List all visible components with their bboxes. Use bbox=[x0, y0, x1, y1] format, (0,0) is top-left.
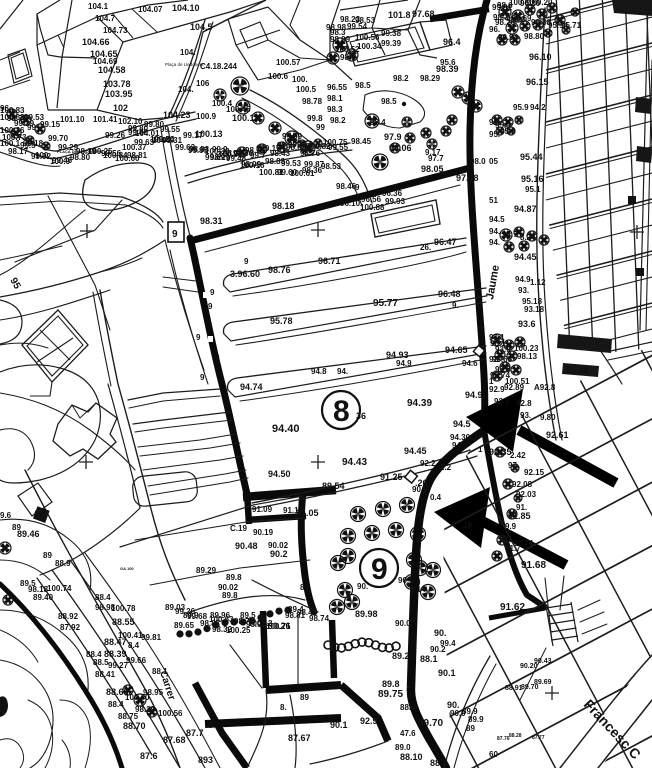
svg-text:C.19: C.19 bbox=[230, 524, 247, 533]
svg-text:96.10: 96.10 bbox=[340, 199, 361, 208]
svg-text:87.76: 87.76 bbox=[497, 736, 510, 742]
svg-text:89.98: 89.98 bbox=[355, 609, 378, 619]
svg-text:94.43: 94.43 bbox=[342, 457, 367, 468]
svg-text:87.77: 87.77 bbox=[532, 735, 545, 741]
svg-text:A92.8: A92.8 bbox=[534, 383, 556, 392]
svg-text:9: 9 bbox=[244, 257, 249, 266]
svg-text:91.09: 91.09 bbox=[252, 505, 273, 514]
svg-text:100.41: 100.41 bbox=[118, 631, 143, 640]
svg-text:96.10: 96.10 bbox=[529, 52, 552, 62]
svg-text:90.43: 90.43 bbox=[534, 658, 552, 665]
svg-text:94.40: 94.40 bbox=[272, 423, 300, 435]
svg-text:89.0: 89.0 bbox=[395, 743, 411, 752]
svg-text:60: 60 bbox=[489, 750, 498, 759]
svg-text:98.81: 98.81 bbox=[127, 151, 148, 160]
svg-text:92.9: 92.9 bbox=[360, 716, 378, 726]
svg-text:99.7: 99.7 bbox=[250, 151, 266, 160]
svg-text:89.8: 89.8 bbox=[222, 591, 238, 600]
svg-text:9.80: 9.80 bbox=[540, 413, 556, 422]
svg-text:89.9: 89.9 bbox=[468, 715, 484, 724]
svg-text:89: 89 bbox=[300, 693, 309, 702]
svg-text:100.74: 100.74 bbox=[47, 584, 72, 593]
svg-text:92.15: 92.15 bbox=[524, 468, 545, 477]
svg-text:99.53: 99.53 bbox=[281, 159, 302, 168]
svg-text:95.71: 95.71 bbox=[561, 21, 582, 30]
svg-text:102: 102 bbox=[113, 103, 128, 113]
svg-text:90.1: 90.1 bbox=[438, 668, 456, 678]
svg-text:96: 96 bbox=[0, 104, 9, 113]
svg-text:98.05: 98.05 bbox=[421, 164, 444, 174]
svg-text:98.13: 98.13 bbox=[517, 352, 538, 361]
svg-text:94.5: 94.5 bbox=[489, 215, 505, 224]
svg-text:100.56: 100.56 bbox=[355, 33, 380, 42]
svg-text:90.2: 90.2 bbox=[270, 549, 288, 559]
svg-text:95.78: 95.78 bbox=[270, 316, 293, 326]
svg-text:94.74: 94.74 bbox=[240, 382, 263, 392]
svg-text:98.78: 98.78 bbox=[7, 114, 28, 123]
svg-text:94.65: 94.65 bbox=[445, 345, 468, 355]
svg-text:93.18: 93.18 bbox=[524, 305, 545, 314]
svg-text:98.3: 98.3 bbox=[327, 105, 343, 114]
svg-text:98.4: 98.4 bbox=[370, 118, 386, 127]
svg-text:3: 3 bbox=[208, 720, 213, 730]
svg-text:99.70: 99.70 bbox=[48, 134, 69, 143]
svg-text:89.40: 89.40 bbox=[33, 593, 54, 602]
svg-text:104.: 104. bbox=[180, 48, 196, 57]
svg-text:104.10: 104.10 bbox=[172, 3, 200, 13]
svg-text:9: 9 bbox=[208, 302, 213, 311]
svg-text:97.38: 97.38 bbox=[456, 173, 479, 183]
svg-text:89.75: 89.75 bbox=[378, 689, 403, 700]
svg-text:Plaça de Lledoners: Plaça de Lledoners bbox=[165, 62, 204, 67]
svg-text:87.7: 87.7 bbox=[186, 728, 204, 738]
svg-text:95.77: 95.77 bbox=[373, 298, 398, 309]
svg-text:2.2: 2.2 bbox=[440, 463, 452, 472]
svg-text:98.2: 98.2 bbox=[330, 116, 346, 125]
svg-text:9: 9 bbox=[371, 553, 388, 586]
svg-text:96.71: 96.71 bbox=[318, 256, 341, 266]
svg-text:88.41: 88.41 bbox=[95, 670, 116, 679]
svg-text:.18: .18 bbox=[461, 521, 473, 530]
svg-text:96.4: 96.4 bbox=[443, 37, 461, 47]
svg-text:94.: 94. bbox=[452, 441, 463, 450]
svg-text:89.69: 89.69 bbox=[534, 679, 552, 686]
svg-text:99.38: 99.38 bbox=[381, 29, 402, 38]
svg-text:104.58: 104.58 bbox=[98, 65, 126, 75]
svg-text:94.8: 94.8 bbox=[311, 367, 327, 376]
svg-text:100.18: 100.18 bbox=[232, 113, 260, 123]
svg-text:92.89: 92.89 bbox=[504, 383, 525, 392]
svg-text:90.1: 90.1 bbox=[330, 720, 348, 730]
svg-text:92.9: 92.9 bbox=[489, 385, 505, 394]
svg-text:98.18: 98.18 bbox=[28, 585, 49, 594]
svg-text:94.5: 94.5 bbox=[453, 419, 471, 429]
svg-text:99: 99 bbox=[27, 123, 36, 132]
svg-text:103.78: 103.78 bbox=[103, 79, 131, 89]
svg-text:94.45: 94.45 bbox=[514, 252, 537, 262]
svg-text:98.31: 98.31 bbox=[200, 216, 223, 226]
svg-text:92.08: 92.08 bbox=[512, 480, 533, 489]
svg-text:100.88: 100.88 bbox=[360, 203, 385, 212]
svg-text:PLAÇA DE LLEDONERS: PLAÇA DE LLEDONERS bbox=[57, 149, 103, 154]
svg-text:9: 9 bbox=[355, 183, 360, 192]
svg-text:9.9: 9.9 bbox=[505, 522, 517, 531]
svg-text:98.11: 98.11 bbox=[490, 339, 510, 348]
svg-text:98.95: 98.95 bbox=[143, 688, 164, 697]
svg-text:97.68: 97.68 bbox=[412, 9, 435, 19]
svg-text:104.23: 104.23 bbox=[163, 110, 191, 120]
svg-text:98.39: 98.39 bbox=[436, 64, 459, 74]
svg-text:101.10: 101.10 bbox=[60, 115, 85, 124]
svg-text:99.55: 99.55 bbox=[160, 125, 181, 134]
svg-text:98.76: 98.76 bbox=[300, 149, 321, 158]
svg-text:88.1: 88.1 bbox=[152, 667, 168, 676]
svg-text:100.13: 100.13 bbox=[195, 129, 223, 139]
svg-text:90.: 90. bbox=[357, 582, 368, 591]
svg-text:89.2: 89.2 bbox=[392, 651, 410, 661]
svg-text:99.26: 99.26 bbox=[105, 131, 126, 140]
svg-text:98.36: 98.36 bbox=[302, 166, 323, 175]
svg-text:98.65: 98.65 bbox=[492, 355, 513, 364]
svg-text:99.8: 99.8 bbox=[288, 140, 304, 149]
svg-text:99.66: 99.66 bbox=[126, 656, 147, 665]
svg-text:99.81: 99.81 bbox=[141, 633, 162, 642]
svg-text:89.70: 89.70 bbox=[418, 718, 443, 729]
svg-text:89.65: 89.65 bbox=[174, 621, 195, 630]
svg-text:C4.18.244: C4.18.244 bbox=[200, 62, 237, 71]
svg-text:100.1: 100.1 bbox=[0, 139, 21, 148]
svg-text:95.1: 95.1 bbox=[525, 185, 541, 194]
svg-text:88.4: 88.4 bbox=[95, 593, 111, 602]
svg-text:100.5: 100.5 bbox=[296, 85, 317, 94]
svg-text:1.12: 1.12 bbox=[530, 278, 546, 287]
svg-text:88.92: 88.92 bbox=[58, 612, 79, 621]
svg-text:100.6: 100.6 bbox=[268, 72, 289, 81]
svg-text:9.: 9. bbox=[452, 301, 459, 310]
svg-text:87.92: 87.92 bbox=[60, 623, 81, 632]
svg-text:91.7: 91.7 bbox=[505, 544, 521, 553]
svg-text:100.69: 100.69 bbox=[507, 14, 532, 23]
svg-text:98.5: 98.5 bbox=[340, 53, 356, 62]
svg-text:3.96.60: 3.96.60 bbox=[230, 269, 260, 279]
svg-text:94.6: 94.6 bbox=[462, 359, 478, 368]
svg-text:90.19: 90.19 bbox=[253, 528, 274, 537]
svg-text:100.56: 100.56 bbox=[158, 709, 183, 718]
svg-text:2.14: 2.14 bbox=[410, 585, 426, 594]
svg-text:94.39: 94.39 bbox=[407, 398, 432, 409]
svg-text:106: 106 bbox=[196, 79, 210, 88]
svg-text:90.: 90. bbox=[398, 576, 409, 585]
svg-text:99.93: 99.93 bbox=[385, 197, 406, 206]
svg-text:97.7: 97.7 bbox=[428, 154, 444, 163]
svg-text:94.9: 94.9 bbox=[396, 359, 412, 368]
svg-text:98.45: 98.45 bbox=[351, 137, 372, 146]
svg-text:893: 893 bbox=[198, 755, 213, 765]
svg-text:95.16: 95.16 bbox=[521, 174, 544, 184]
svg-text:9: 9 bbox=[196, 333, 201, 342]
svg-text:98.2: 98.2 bbox=[393, 74, 409, 83]
svg-text:89.8: 89.8 bbox=[226, 573, 242, 582]
svg-text:94.2: 94.2 bbox=[530, 103, 546, 112]
svg-text:94.9: 94.9 bbox=[515, 275, 531, 284]
svg-text:90.48: 90.48 bbox=[235, 541, 258, 551]
svg-text:93.: 93. bbox=[520, 411, 531, 420]
svg-text:100.: 100. bbox=[292, 75, 308, 84]
svg-text:99.39: 99.39 bbox=[381, 39, 402, 48]
svg-text:101.8: 101.8 bbox=[388, 10, 411, 20]
svg-text:96.47: 96.47 bbox=[434, 237, 457, 247]
svg-text:2.42: 2.42 bbox=[510, 451, 526, 460]
svg-text:87.68: 87.68 bbox=[163, 735, 186, 745]
svg-text:98.80: 98.80 bbox=[524, 32, 545, 41]
svg-text:103.95: 103.95 bbox=[105, 89, 133, 99]
svg-text:104: 104 bbox=[152, 136, 166, 145]
svg-text:90.: 90. bbox=[434, 628, 447, 638]
svg-text:104.07: 104.07 bbox=[138, 5, 163, 14]
svg-text:99.95: 99.95 bbox=[188, 146, 209, 155]
svg-text:98.76: 98.76 bbox=[268, 265, 291, 275]
svg-text:98.29: 98.29 bbox=[420, 74, 441, 83]
svg-text:104.1: 104.1 bbox=[88, 2, 109, 11]
svg-text:100.34: 100.34 bbox=[357, 42, 382, 51]
svg-text:88.55: 88.55 bbox=[112, 617, 135, 627]
svg-text:98.99: 98.99 bbox=[330, 35, 351, 44]
svg-text:92.61: 92.61 bbox=[546, 430, 569, 440]
svg-text:100.9: 100.9 bbox=[50, 157, 71, 166]
svg-text:88.28: 88.28 bbox=[509, 733, 522, 739]
svg-text:98.78: 98.78 bbox=[302, 97, 323, 106]
svg-text:8.: 8. bbox=[280, 703, 287, 712]
svg-text:51: 51 bbox=[489, 196, 498, 205]
svg-text:100.57: 100.57 bbox=[276, 58, 301, 67]
svg-text:101.41: 101.41 bbox=[93, 115, 118, 124]
svg-text:47.6: 47.6 bbox=[400, 729, 416, 738]
svg-text:104.73: 104.73 bbox=[103, 26, 128, 35]
svg-text:94.45: 94.45 bbox=[404, 446, 427, 456]
svg-text:88.1: 88.1 bbox=[420, 654, 438, 664]
svg-text:89.46: 89.46 bbox=[17, 529, 40, 539]
svg-text:88.91: 88.91 bbox=[505, 685, 523, 692]
svg-text:104.: 104. bbox=[178, 85, 194, 94]
svg-text:100: 100 bbox=[35, 151, 49, 160]
svg-text:9: 9 bbox=[172, 229, 178, 240]
svg-text:98.5: 98.5 bbox=[381, 97, 397, 106]
svg-text:8: 8 bbox=[333, 395, 350, 428]
svg-text:1: 1 bbox=[478, 445, 483, 454]
svg-text:104.5: 104.5 bbox=[190, 22, 213, 32]
svg-text:99: 99 bbox=[316, 123, 325, 132]
svg-text:100.20: 100.20 bbox=[528, 0, 553, 7]
svg-text:99.97: 99.97 bbox=[246, 620, 267, 629]
svg-text:89.: 89. bbox=[300, 583, 311, 592]
svg-text:99.94: 99.94 bbox=[498, 33, 519, 42]
svg-text:91.05: 91.05 bbox=[296, 508, 319, 518]
svg-text:99.8: 99.8 bbox=[307, 114, 323, 123]
svg-text:87.67: 87.67 bbox=[288, 733, 311, 743]
svg-text:98.1: 98.1 bbox=[327, 94, 343, 103]
svg-text:94.: 94. bbox=[337, 367, 348, 376]
svg-text:88.10: 88.10 bbox=[400, 752, 423, 762]
svg-text:99.55: 99.55 bbox=[328, 143, 349, 152]
svg-text:91.1: 91.1 bbox=[283, 506, 299, 515]
svg-text:0.4: 0.4 bbox=[430, 493, 442, 502]
svg-text:90.2: 90.2 bbox=[412, 485, 428, 494]
svg-text:94.9: 94.9 bbox=[465, 390, 483, 400]
svg-text:91.62: 91.62 bbox=[500, 602, 525, 613]
svg-text:90.0: 90.0 bbox=[395, 619, 411, 628]
svg-text:98.06: 98.06 bbox=[389, 143, 412, 153]
svg-text:98.74: 98.74 bbox=[309, 614, 330, 623]
svg-text:95.44: 95.44 bbox=[520, 152, 543, 162]
svg-text:90.2: 90.2 bbox=[430, 645, 446, 654]
svg-text:100.71: 100.71 bbox=[266, 622, 291, 631]
svg-text:88.9: 88.9 bbox=[55, 559, 71, 568]
svg-text:8.4: 8.4 bbox=[128, 641, 140, 650]
svg-text:26.: 26. bbox=[420, 243, 431, 252]
svg-text:9: 9 bbox=[200, 373, 205, 382]
svg-text:96.55: 96.55 bbox=[327, 83, 348, 92]
svg-text:98.53: 98.53 bbox=[321, 162, 342, 171]
svg-text:100.78: 100.78 bbox=[111, 604, 136, 613]
svg-text:104.7: 104.7 bbox=[95, 14, 116, 23]
svg-text:97.9: 97.9 bbox=[384, 132, 402, 142]
svg-text:89: 89 bbox=[466, 724, 475, 733]
svg-text:9.6: 9.6 bbox=[0, 511, 12, 520]
svg-text:9: 9 bbox=[215, 353, 220, 362]
svg-text:94.: 94. bbox=[489, 227, 500, 236]
svg-text:89.54: 89.54 bbox=[322, 481, 345, 491]
svg-text:100.36: 100.36 bbox=[0, 126, 25, 135]
svg-text:93.: 93. bbox=[518, 286, 529, 295]
svg-text:99.5: 99.5 bbox=[20, 141, 36, 150]
svg-text:9: 9 bbox=[210, 288, 215, 297]
svg-text:93.6: 93.6 bbox=[518, 319, 536, 329]
svg-text:92.2: 92.2 bbox=[420, 459, 436, 468]
svg-text:91.68: 91.68 bbox=[521, 560, 546, 571]
svg-text:88.70: 88.70 bbox=[123, 721, 146, 731]
svg-text:98.5: 98.5 bbox=[355, 81, 371, 90]
svg-text:87.6: 87.6 bbox=[140, 751, 158, 761]
svg-text:89.29: 89.29 bbox=[196, 566, 217, 575]
svg-text:91.25: 91.25 bbox=[380, 472, 403, 482]
svg-text:36: 36 bbox=[356, 411, 366, 421]
svg-text:98.53: 98.53 bbox=[355, 16, 376, 25]
svg-text:88.4: 88.4 bbox=[108, 700, 124, 709]
svg-text:88.3: 88.3 bbox=[400, 703, 416, 712]
svg-text:95.9: 95.9 bbox=[513, 103, 529, 112]
svg-text:102.10: 102.10 bbox=[118, 117, 143, 126]
svg-text:92.88: 92.88 bbox=[566, 366, 589, 376]
svg-text:96.15: 96.15 bbox=[526, 77, 549, 87]
svg-text:98.18: 98.18 bbox=[272, 201, 295, 211]
svg-text:92.7: 92.7 bbox=[494, 397, 510, 406]
svg-text:88.5: 88.5 bbox=[93, 658, 109, 667]
svg-text:104.66: 104.66 bbox=[82, 37, 110, 47]
svg-text:98.98: 98.98 bbox=[326, 23, 347, 32]
svg-text:GA 100: GA 100 bbox=[120, 566, 134, 571]
svg-text:89.8: 89.8 bbox=[382, 679, 400, 689]
svg-text:94.: 94. bbox=[489, 238, 500, 247]
svg-text:94.87: 94.87 bbox=[514, 204, 537, 214]
svg-text:99.9: 99.9 bbox=[212, 145, 228, 154]
svg-text:100.9: 100.9 bbox=[196, 112, 217, 121]
svg-text:98.88: 98.88 bbox=[531, 18, 552, 27]
svg-text:92.8: 92.8 bbox=[516, 399, 532, 408]
svg-text:98.46: 98.46 bbox=[336, 182, 357, 191]
svg-text:98.0: 98.0 bbox=[470, 157, 486, 166]
svg-text:96.48: 96.48 bbox=[438, 289, 461, 299]
svg-text:05: 05 bbox=[489, 157, 498, 166]
svg-text:88.7: 88.7 bbox=[430, 758, 448, 768]
svg-text:94.50: 94.50 bbox=[268, 469, 291, 479]
svg-text:89: 89 bbox=[43, 551, 52, 560]
